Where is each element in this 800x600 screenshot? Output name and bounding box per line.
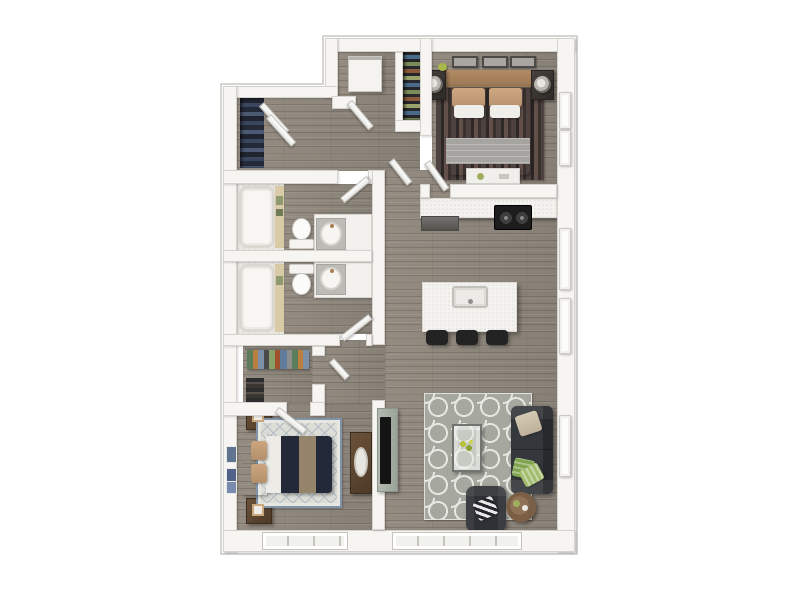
bathroom1-toilet: [292, 218, 311, 240]
bathroom2-toilet: [292, 273, 311, 295]
wall-shoe-closet-west: [395, 52, 403, 122]
nightstand-photo-frame-bottom: [252, 504, 264, 516]
living-room-right-window: [559, 415, 571, 477]
bedroom2-wall-art-large: [226, 468, 237, 494]
bar-stool-3: [486, 330, 508, 345]
closet-rod: [245, 348, 311, 350]
closet-shoe-stack: [246, 378, 264, 402]
wall-top: [325, 38, 575, 52]
wall-bathroom-east: [372, 170, 385, 345]
bedroom2-tan-pillow-top: [251, 441, 267, 460]
kitchen-counter: [420, 198, 557, 218]
table-lamp-right: [534, 76, 551, 93]
bedroom2-wall-art-small: [226, 446, 237, 463]
wall-bathroom-divider: [223, 250, 372, 262]
bedroom1-foot-blanket: [446, 138, 530, 164]
bedroom1-white-pillow-right: [490, 105, 520, 118]
floor-plan: [0, 0, 800, 600]
bedroom1-white-pillow-left: [454, 105, 484, 118]
wall-frame-3: [510, 56, 536, 68]
bathroom2-toilet-tank: [289, 264, 314, 274]
wall-bedroom1-south-stub: [420, 184, 430, 198]
kitchen-right-window-lower: [559, 298, 571, 354]
hanging-clothes: [247, 350, 309, 369]
wall-hallway-south-a: [223, 170, 338, 184]
bathroom1-faucet: [330, 224, 334, 228]
coffee-table-greenery: [459, 439, 475, 453]
bathroom2-tub-trim-towels: [275, 264, 284, 332]
bathroom1-bathtub: [239, 186, 275, 248]
dresser-oval-mirror: [354, 447, 368, 477]
bathroom1-toilet-tank: [289, 239, 314, 249]
bedroom1-dresser: [466, 168, 520, 184]
wall-shoe-closet-lip: [395, 120, 422, 132]
bedroom2-bed-runner: [299, 436, 316, 493]
tv-screen: [380, 417, 391, 484]
wall-closet-east-b: [312, 384, 325, 404]
living-room-bottom-window: [392, 532, 522, 550]
island-sink: [452, 286, 488, 308]
bar-stool-1: [426, 330, 448, 345]
bedroom2-sheet-band: [266, 436, 282, 493]
kitchen-right-window-upper: [559, 228, 571, 290]
small-plant-decor: [438, 63, 447, 71]
bathroom2-faucet: [330, 269, 334, 273]
wall-bathroom2-south-b: [366, 334, 372, 346]
wall-bathroom2-south-a: [223, 334, 340, 346]
bedroom1-right-window-lower: [559, 130, 571, 166]
bar-stool-2: [456, 330, 478, 345]
range-cooktop: [494, 205, 532, 230]
wall-hallway-north: [223, 86, 338, 98]
bedroom1-right-window-upper: [559, 92, 571, 129]
wall-frame-2: [482, 56, 508, 68]
bedroom2-bottom-window: [262, 532, 348, 550]
kitchen-base-appliance: [421, 216, 459, 231]
wall-bedroom1-south: [450, 184, 557, 198]
bathroom1-tub-trim-towels: [275, 186, 284, 248]
bathroom2-bathtub: [239, 264, 275, 332]
washer-dryer-unit: [348, 56, 382, 92]
bedroom2-tan-pillow-bottom: [251, 464, 267, 483]
wall-frame-1: [452, 56, 478, 68]
wall-bedroom2-north-stub: [310, 402, 325, 416]
wall-bedroom1-west: [420, 38, 432, 136]
wall-closet-east-a: [312, 346, 325, 356]
round-side-table: [506, 492, 536, 522]
